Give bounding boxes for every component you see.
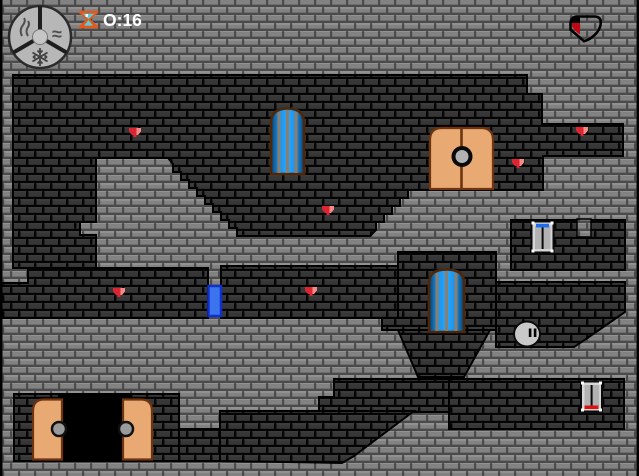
svg-text:≈: ≈ — [52, 24, 62, 44]
svg-text:O:16: O:16 — [103, 10, 142, 30]
